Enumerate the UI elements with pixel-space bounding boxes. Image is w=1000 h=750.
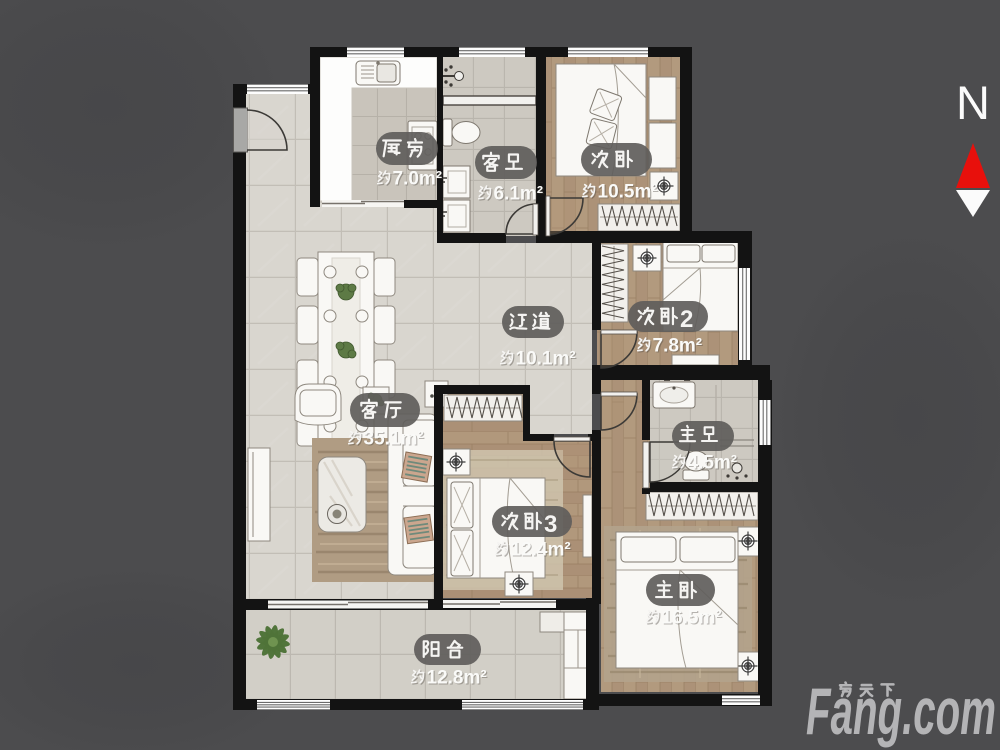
svg-text:3: 3 — [544, 511, 557, 538]
svg-text:7.8m²: 7.8m² — [653, 336, 703, 357]
svg-text:7.0m²: 7.0m² — [393, 169, 443, 190]
svg-text:6.1m²: 6.1m² — [494, 184, 544, 205]
svg-text:12.8m²: 12.8m² — [427, 668, 487, 689]
svg-text:16.5m²: 16.5m² — [662, 608, 722, 629]
svg-text:10.5m²: 10.5m² — [598, 182, 658, 203]
svg-text:Fang.com: Fang.com — [806, 674, 996, 748]
svg-text:10.1m²: 10.1m² — [516, 349, 576, 370]
svg-text:N: N — [956, 76, 990, 129]
svg-text:2: 2 — [680, 306, 693, 333]
svg-text:4.5m²: 4.5m² — [688, 453, 738, 474]
svg-text:35.1m²: 35.1m² — [364, 429, 424, 450]
svg-text:12.4m²: 12.4m² — [511, 540, 571, 561]
